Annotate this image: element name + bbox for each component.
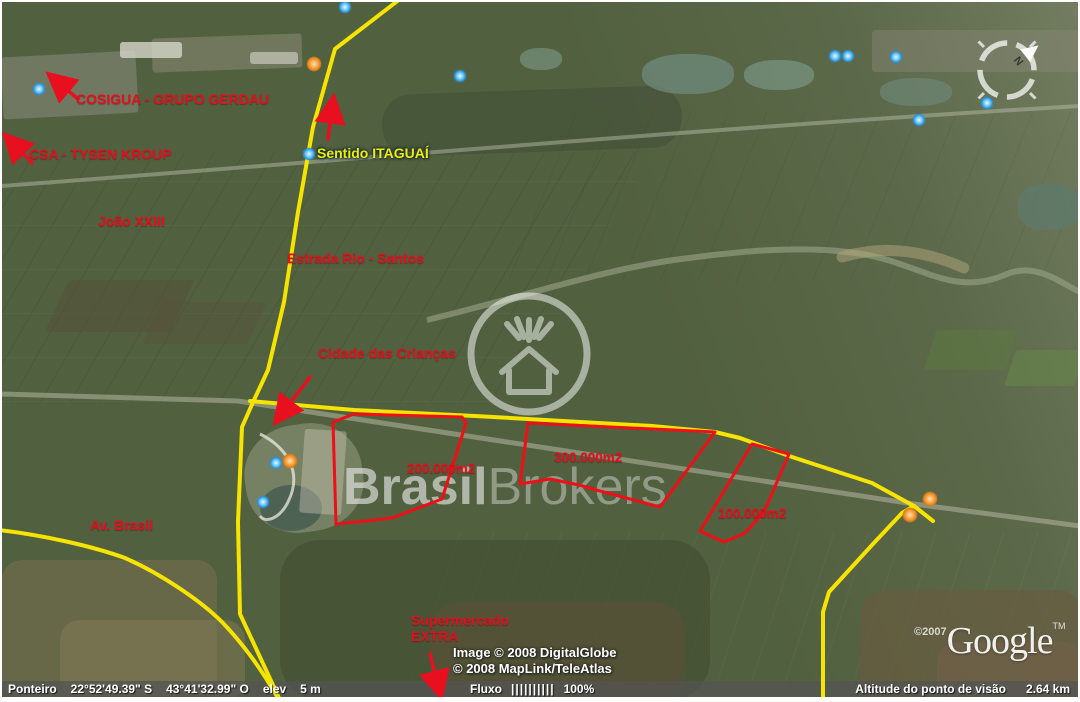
google-logo: ©2007GoogleTM: [914, 619, 1065, 663]
label-sentido-itaguai: Sentido ITAGUAÍ: [317, 145, 429, 161]
label-joao-xxiii: João XXIII: [98, 213, 165, 229]
arrow-cosigua: [52, 77, 78, 99]
elevation-value: 5 m: [300, 682, 321, 696]
stream-percent: 100%: [564, 682, 595, 696]
label-supermercado-extra: Supermercado EXTRA: [411, 612, 509, 644]
brasilbrokers-logo-icon: [471, 296, 587, 412]
placemark-orange-icon[interactable]: [283, 454, 298, 469]
placemark-orange-icon[interactable]: [307, 57, 322, 72]
imagery-attribution-line2: © 2008 MapLink/TeleAtlas: [453, 661, 612, 676]
river: [427, 249, 1078, 320]
elevation-label: elev: [263, 682, 286, 696]
label-cidade-das-criancas: Cidade das Crianças: [318, 345, 456, 361]
compass-north-label: N: [1011, 55, 1025, 69]
google-wordmark: Google: [947, 620, 1053, 662]
google-tm: TM: [1052, 621, 1065, 631]
label-area-100000: 100.000m2: [718, 506, 786, 521]
stream-label: Fluxo: [470, 682, 502, 696]
placemark-blue-icon[interactable]: [913, 114, 926, 127]
label-supermercado-line1: Supermercado: [411, 612, 509, 628]
label-area-300000: 300.000m2: [554, 450, 622, 465]
label-area-200000: 200.000m2: [407, 461, 475, 476]
placemark-blue-icon[interactable]: [454, 70, 467, 83]
compass-icon[interactable]: N: [972, 35, 1043, 104]
placemark-orange-icon[interactable]: [903, 508, 918, 523]
imagery-attribution-line1: Image © 2008 DigitalGlobe: [453, 645, 616, 660]
altitude-value: 2.64 km: [1026, 682, 1070, 696]
placemark-blue-icon[interactable]: [842, 50, 855, 63]
placemark-orange-icon[interactable]: [923, 492, 938, 507]
stream-progress-bars: ||||||||||: [511, 682, 555, 696]
pointer-label: Ponteiro: [8, 682, 57, 696]
placemark-blue-icon[interactable]: [981, 97, 994, 110]
arrow-sentido: [328, 101, 333, 139]
altitude-label: Altitude do ponto de visão: [855, 682, 1006, 696]
google-earth-window: { "map_labels": { "cosigua": "COSIGUA - …: [0, 0, 1080, 702]
google-copyright: ©2007: [914, 626, 947, 638]
placemark-blue-icon[interactable]: [270, 457, 283, 470]
placemark-blue-icon[interactable]: [890, 51, 903, 64]
satellite-map-view[interactable]: N BrasilBrokers COSIGUA - GRUPO GERDAU C…: [2, 2, 1078, 697]
placemark-blue-icon[interactable]: [33, 83, 46, 96]
status-bar-text: Ponteiro 22°52'49.39" S 43°41'32.99" O e…: [2, 681, 1078, 697]
parcel-100000m2: [700, 444, 789, 542]
label-csa: CSA - TYSEN KROUP: [29, 146, 172, 162]
pointer-longitude: 43°41'32.99" O: [166, 682, 249, 696]
label-cosigua: COSIGUA - GRUPO GERDAU: [76, 91, 269, 107]
parcel-300000m2: [520, 423, 715, 507]
placemark-blue-icon[interactable]: [303, 148, 316, 161]
pointer-latitude: 22°52'49.39" S: [71, 682, 152, 696]
label-av-brasil: Av. Brasil: [90, 517, 153, 533]
placemark-blue-icon[interactable]: [829, 50, 842, 63]
label-supermercado-line2: EXTRA: [411, 628, 458, 644]
placemark-blue-icon[interactable]: [257, 496, 270, 509]
label-estrada-rio-santos: Estrada Rio - Santos: [287, 250, 424, 266]
